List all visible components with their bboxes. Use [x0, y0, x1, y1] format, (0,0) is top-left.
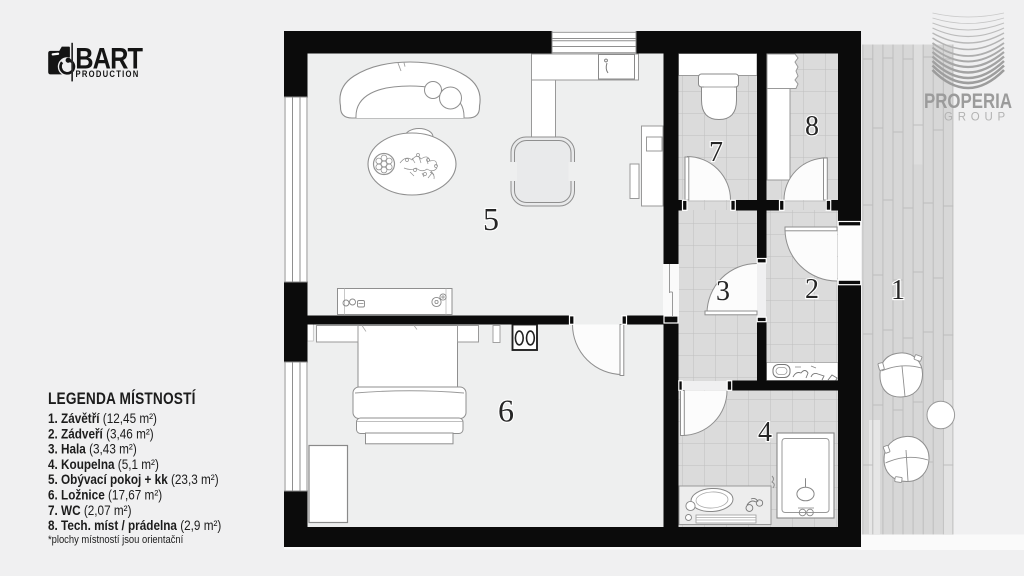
svg-text:6: 6 [498, 393, 514, 429]
svg-text:4. Koupelna (5,1 m²): 4. Koupelna (5,1 m²) [48, 456, 159, 472]
svg-text:4: 4 [758, 417, 772, 448]
svg-text:2. Zádveří (3,46 m²): 2. Zádveří (3,46 m²) [48, 425, 154, 441]
svg-text:6. Ložnice (17,67 m²): 6. Ložnice (17,67 m²) [48, 487, 162, 503]
svg-text:5: 5 [483, 201, 499, 237]
svg-text:3. Hala (3,43 m²): 3. Hala (3,43 m²) [48, 441, 137, 457]
svg-text:*plochy místností jsou orienta: *plochy místností jsou orientační [48, 534, 183, 546]
svg-text:GROUP: GROUP [944, 110, 1010, 124]
svg-text:2: 2 [805, 274, 819, 305]
svg-text:1: 1 [891, 275, 905, 306]
svg-text:1. Závětří (12,45 m²): 1. Závětří (12,45 m²) [48, 410, 157, 426]
svg-text:7: 7 [709, 137, 723, 168]
svg-text:8. Tech. míst / prádelna (2,9: 8. Tech. míst / prádelna (2,9 m²) [48, 517, 221, 533]
svg-text:8: 8 [805, 111, 819, 142]
svg-text:LEGENDA MÍSTNOSTÍ: LEGENDA MÍSTNOSTÍ [48, 390, 196, 408]
svg-text:5. Obývací pokoj + kk (23,3 m²: 5. Obývací pokoj + kk (23,3 m²) [48, 471, 219, 487]
svg-text:3: 3 [716, 276, 730, 307]
svg-text:7. WC (2,07 m²): 7. WC (2,07 m²) [48, 502, 131, 518]
svg-text:PRODUCTION: PRODUCTION [76, 69, 140, 79]
